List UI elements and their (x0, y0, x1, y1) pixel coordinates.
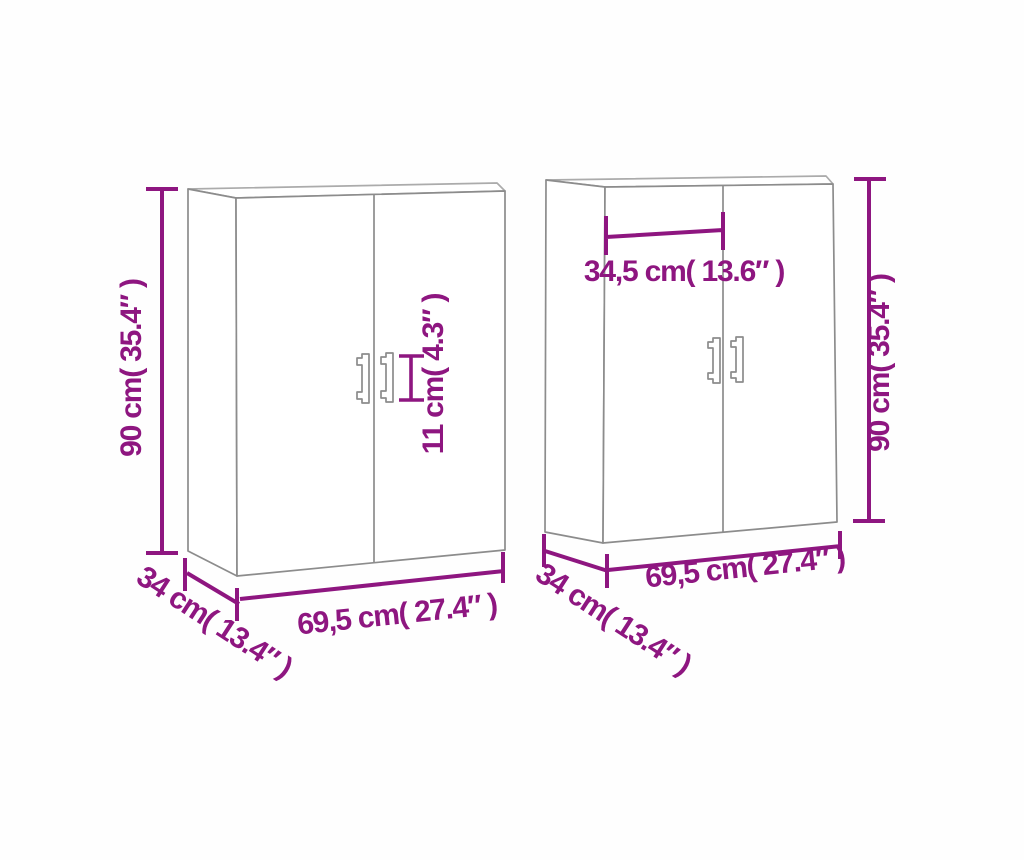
right-width-label: 69,5 cm( 27.4″ ) (644, 541, 847, 595)
dimension-diagram: 90 cm( 35.4″ ) 11 cm( 4.3″ ) 34 cm( 13.4… (0, 0, 1024, 860)
diagram-canvas: 90 cm( 35.4″ ) 11 cm( 4.3″ ) 34 cm( 13.4… (0, 0, 1024, 860)
left-height-label: 90 cm( 35.4″ ) (115, 279, 148, 457)
left-depth-label: 34 cm( 13.4″ ) (131, 560, 298, 685)
left-height-dimension-line (146, 189, 178, 553)
left-handle-height-label: 11 cm( 4.3″ ) (417, 294, 450, 455)
left-cabinet-front-face (236, 191, 505, 576)
left-cabinet-side-face (188, 189, 237, 576)
left-cabinet-drawing (188, 183, 505, 576)
right-cabinet-side-face (545, 180, 605, 543)
right-height-label: 90 cm( 35.4″ ) (863, 274, 896, 452)
right-door-width-label: 34,5 cm( 13.6″ ) (584, 255, 785, 288)
left-width-label: 69,5 cm( 27.4″ ) (296, 588, 499, 642)
